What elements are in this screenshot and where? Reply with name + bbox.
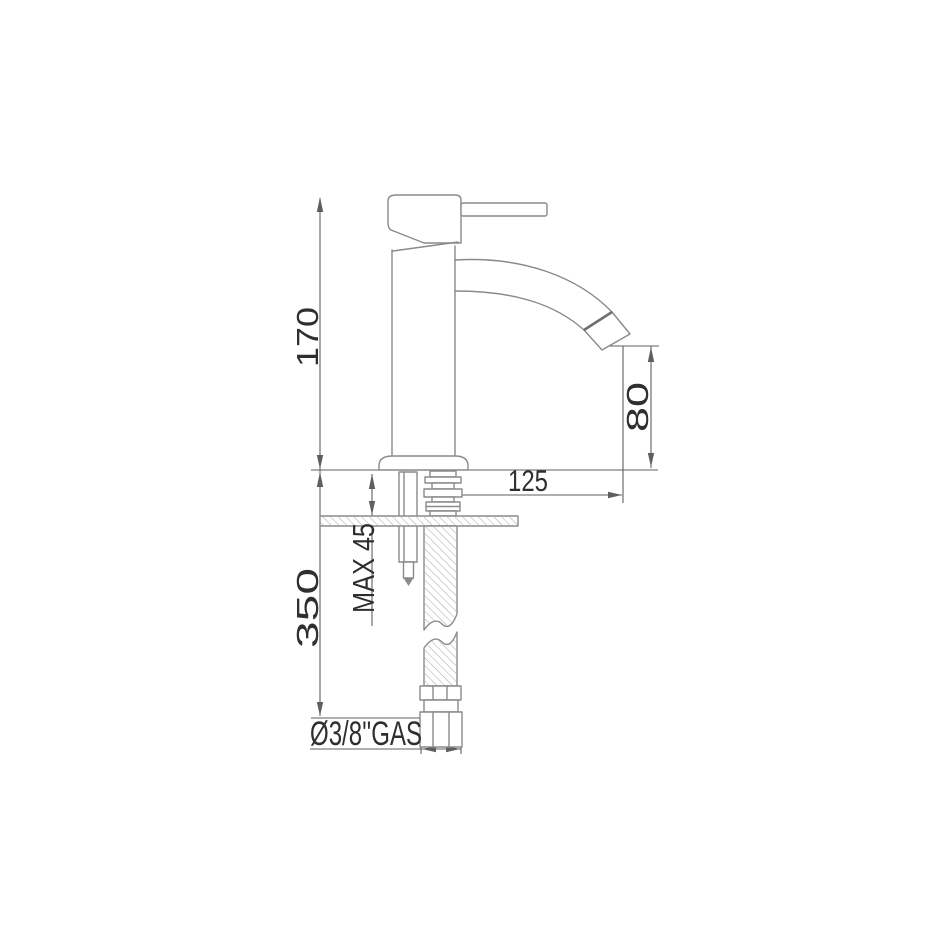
fixing-stud: [399, 472, 417, 586]
dim-80-label: 80: [620, 382, 655, 432]
flexible-hose-lower: [424, 632, 457, 686]
shank-ring-6: [430, 511, 456, 516]
mounting-shank: [424, 471, 462, 516]
shank-ring-1: [430, 471, 456, 477]
hex-nut-body: [420, 712, 462, 747]
fixing-stud-tip: [404, 562, 414, 578]
dim-170-label: 170: [290, 307, 325, 367]
hose-ferrule: [420, 686, 461, 700]
dim-max45-arrow-top: [369, 474, 375, 489]
tap-spout-tip: [584, 312, 630, 350]
dim-350-arrow-top: [317, 472, 323, 487]
dim-350-label: 350: [290, 568, 325, 648]
dim-170-arrow-bottom: [317, 455, 323, 469]
shank-ring-5: [432, 497, 454, 502]
dim-350-arrow-bottom: [317, 702, 323, 716]
hex-nut-chamfer: [424, 700, 458, 712]
tap-spout-top-curve: [455, 260, 612, 312]
tap-spout-bottom-curve: [455, 291, 584, 330]
flexible-hose-upper: [424, 526, 457, 630]
shank-ring-3: [432, 483, 454, 489]
dimension-labels: 170 350 MAX 45 80 125 Ø3/8''GAS: [290, 307, 655, 753]
dim-max45-arrow-bottom: [369, 501, 375, 515]
technical-drawing-canvas: 170 350 MAX 45 80 125 Ø3/8''GAS: [0, 0, 950, 950]
faucet-dimension-drawing: 170 350 MAX 45 80 125 Ø3/8''GAS: [0, 0, 950, 950]
dim-125-arrow-right: [608, 492, 622, 498]
dim-80-arrow-bottom: [648, 453, 654, 467]
dim-max45-label: MAX 45: [346, 523, 381, 613]
tap-base-flange: [379, 456, 468, 470]
dim-gas-label: Ø3/8''GAS: [310, 715, 422, 753]
dim-80-arrow-top: [648, 347, 654, 362]
hose-hex-nut: [420, 700, 462, 747]
tap-handle-head: [388, 195, 461, 243]
dimension-lines: [310, 197, 659, 754]
hose-upper-hatch: [424, 526, 457, 630]
fixing-stud-point: [404, 578, 414, 586]
faucet-parts: [320, 195, 630, 747]
shank-ring-4: [424, 489, 462, 497]
ferrule-body: [420, 686, 461, 700]
shank-ring-2: [425, 477, 461, 483]
dim-125-label: 125: [508, 465, 548, 498]
tap-handle-lever: [461, 203, 547, 216]
dim-170-arrow-top: [317, 197, 323, 212]
